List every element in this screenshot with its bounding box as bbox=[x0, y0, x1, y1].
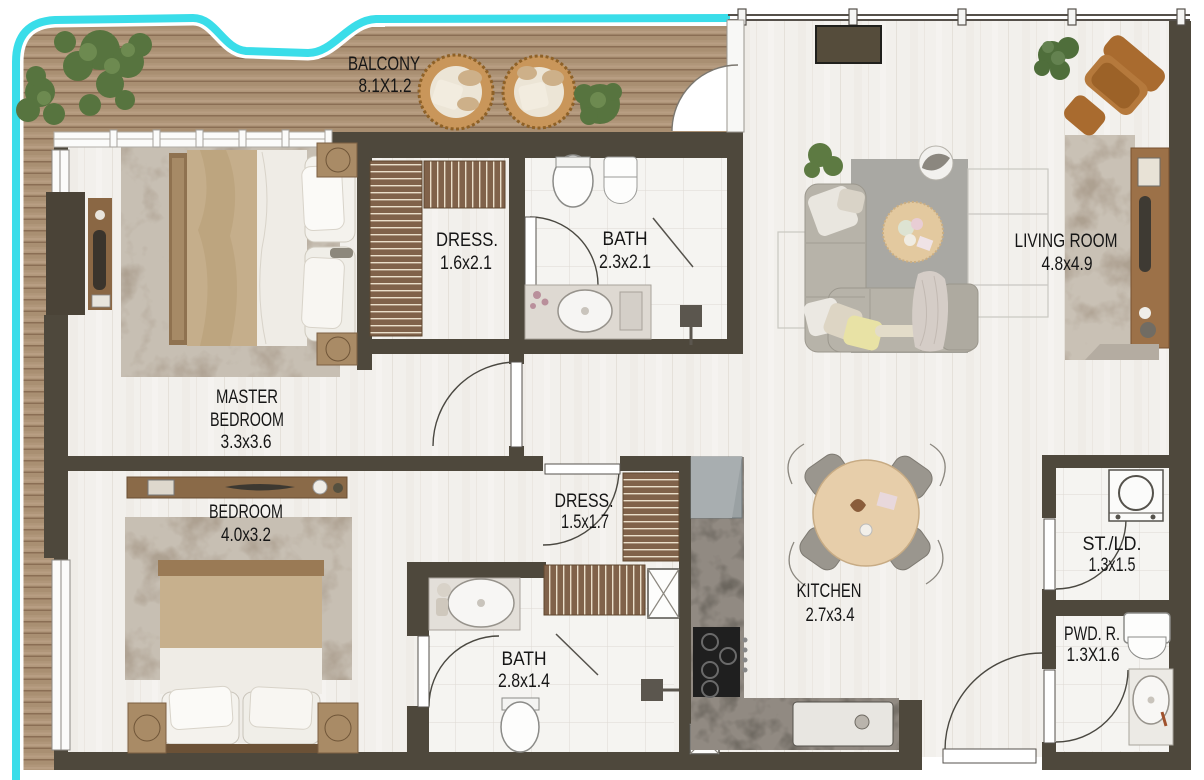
svg-text:8.1X1.2: 8.1X1.2 bbox=[359, 76, 412, 97]
svg-text:1.6x2.1: 1.6x2.1 bbox=[440, 253, 492, 274]
svg-text:DRESS.: DRESS. bbox=[555, 491, 614, 512]
svg-text:1.5x1.7: 1.5x1.7 bbox=[561, 512, 609, 533]
svg-text:1.3X1.6: 1.3X1.6 bbox=[1067, 645, 1120, 666]
svg-text:2.3x2.1: 2.3x2.1 bbox=[599, 252, 651, 273]
svg-text:BATH: BATH bbox=[603, 229, 648, 250]
svg-text:PWD. R.: PWD. R. bbox=[1064, 624, 1120, 645]
svg-text:DRESS.: DRESS. bbox=[436, 230, 498, 251]
svg-text:KITCHEN: KITCHEN bbox=[797, 581, 862, 602]
svg-text:4.0x3.2: 4.0x3.2 bbox=[221, 525, 271, 546]
svg-text:1.3x1.5: 1.3x1.5 bbox=[1089, 555, 1136, 576]
svg-text:2.8x1.4: 2.8x1.4 bbox=[498, 671, 550, 692]
svg-text:4.8x4.9: 4.8x4.9 bbox=[1042, 254, 1093, 275]
svg-text:BALCONY: BALCONY bbox=[348, 54, 420, 75]
svg-text:BEDROOM: BEDROOM bbox=[210, 410, 284, 431]
svg-text:MASTER: MASTER bbox=[216, 387, 278, 408]
svg-text:BEDROOM: BEDROOM bbox=[209, 502, 283, 523]
svg-text:BATH: BATH bbox=[502, 649, 547, 670]
svg-text:LIVING ROOM: LIVING ROOM bbox=[1015, 231, 1118, 252]
svg-text:ST./LD.: ST./LD. bbox=[1083, 534, 1142, 555]
svg-text:2.7x3.4: 2.7x3.4 bbox=[806, 605, 855, 626]
svg-text:3.3x3.6: 3.3x3.6 bbox=[221, 432, 272, 453]
